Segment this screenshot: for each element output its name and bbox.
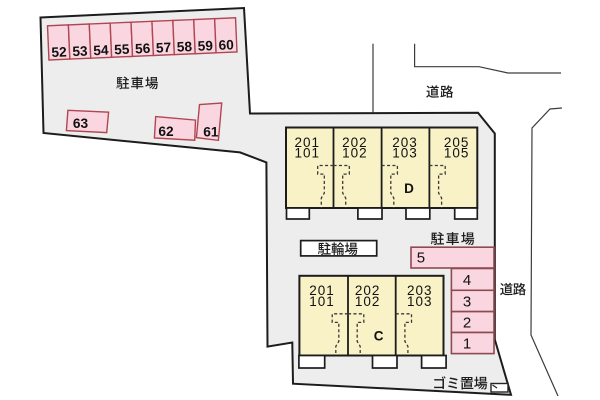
svg-text:C: C — [374, 329, 384, 344]
svg-text:2: 2 — [463, 314, 471, 331]
svg-text:62: 62 — [158, 124, 174, 139]
svg-text:54: 54 — [93, 43, 109, 59]
svg-text:1: 1 — [463, 335, 471, 352]
svg-text:58: 58 — [177, 39, 193, 55]
svg-text:61: 61 — [203, 125, 219, 140]
svg-text:5: 5 — [417, 250, 425, 267]
svg-text:59: 59 — [197, 38, 213, 54]
svg-text:3: 3 — [463, 293, 471, 310]
svg-text:103: 103 — [407, 294, 433, 309]
svg-text:63: 63 — [73, 116, 89, 131]
svg-text:57: 57 — [156, 40, 172, 56]
svg-text:102: 102 — [355, 294, 381, 309]
svg-text:D: D — [404, 181, 414, 196]
svg-text:102: 102 — [342, 145, 368, 160]
svg-text:55: 55 — [114, 42, 130, 58]
svg-text:105: 105 — [444, 145, 470, 160]
svg-text:60: 60 — [218, 37, 234, 53]
svg-text:56: 56 — [135, 41, 151, 57]
svg-text:4: 4 — [463, 272, 471, 289]
svg-text:101: 101 — [295, 145, 321, 160]
svg-text:53: 53 — [72, 43, 88, 59]
svg-text:103: 103 — [392, 145, 418, 160]
svg-text:52: 52 — [51, 44, 67, 60]
svg-text:101: 101 — [309, 294, 335, 309]
